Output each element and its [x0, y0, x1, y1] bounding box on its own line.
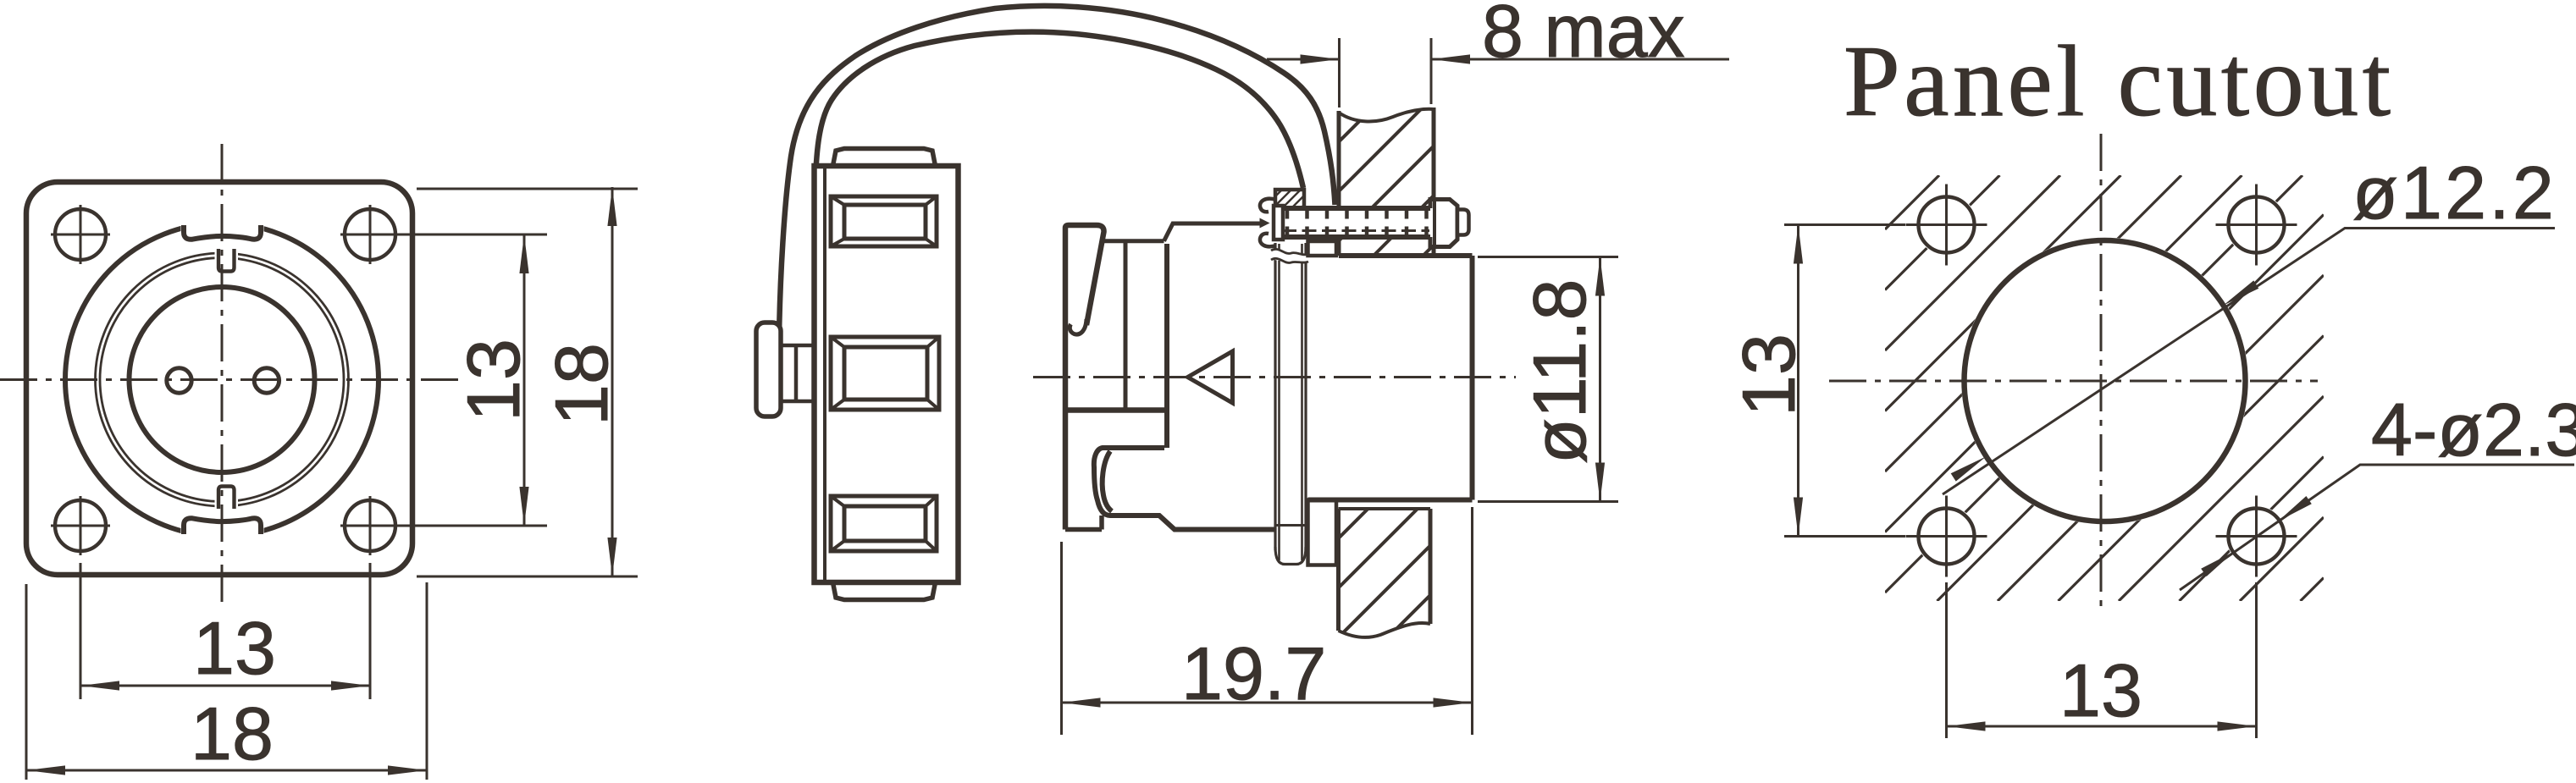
svg-text:13: 13	[2059, 648, 2142, 732]
svg-text:4-ø2.3: 4-ø2.3	[2371, 388, 2576, 471]
svg-text:18: 18	[191, 692, 274, 775]
svg-text:8 max: 8 max	[1482, 0, 1685, 73]
svg-text:13: 13	[193, 606, 276, 690]
svg-text:13: 13	[451, 339, 535, 422]
svg-text:19.7: 19.7	[1181, 631, 1326, 715]
svg-text:ø12.2: ø12.2	[2352, 151, 2557, 234]
svg-text:13: 13	[1727, 334, 1810, 416]
svg-text:18: 18	[539, 343, 623, 426]
svg-text:Panel cutout: Panel cutout	[1844, 25, 2395, 137]
svg-text:ø11.8: ø11.8	[1517, 279, 1601, 465]
